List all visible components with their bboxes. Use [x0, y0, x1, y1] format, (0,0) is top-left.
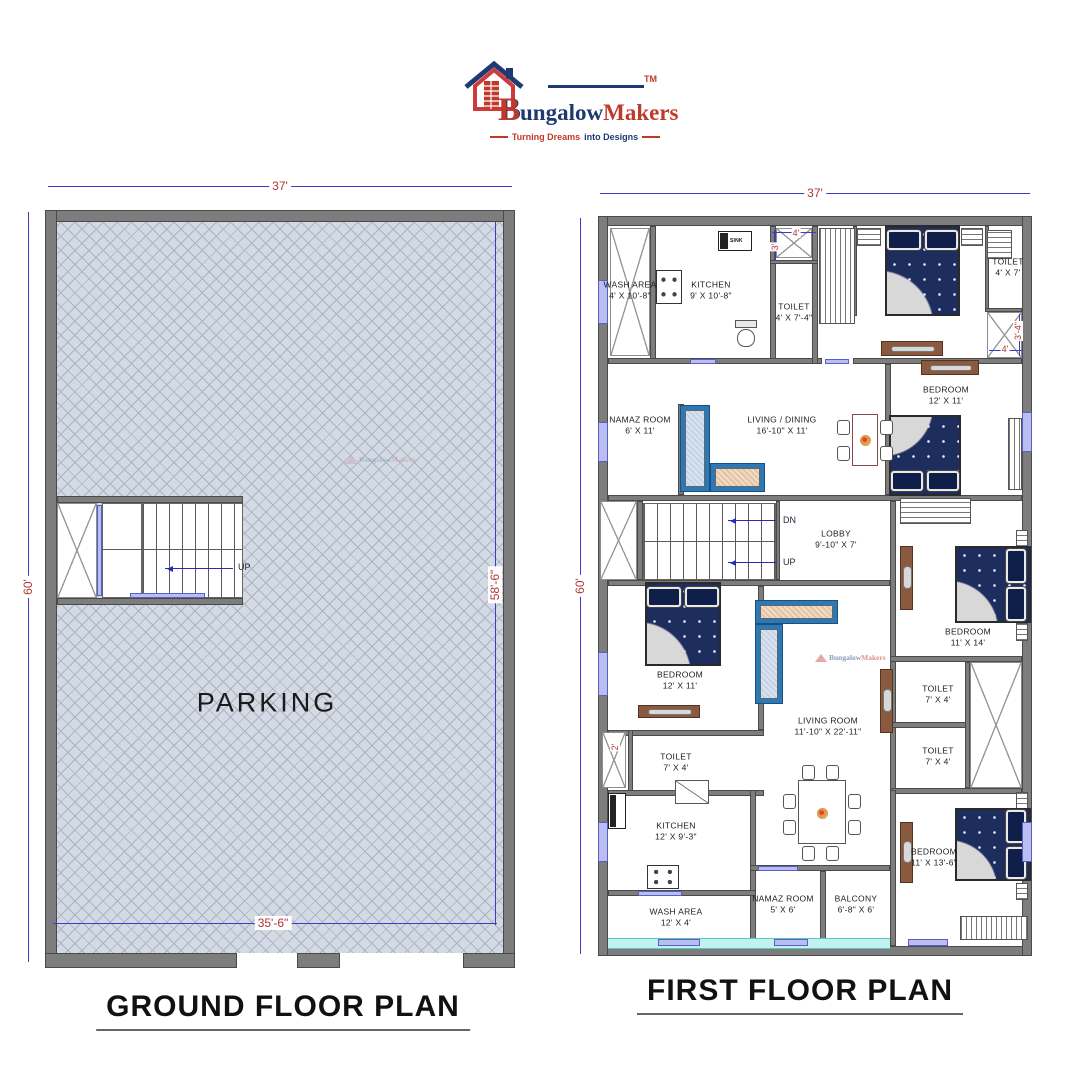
ff-shaft-right-width: 4'	[1001, 344, 1010, 354]
bed-bottom-right	[955, 808, 1031, 881]
gf-stair-wall-bottom	[57, 598, 243, 605]
sink-icon: SINK	[718, 231, 752, 251]
bed-right-middle	[889, 415, 961, 496]
brand-bungalow: ungalow	[520, 100, 603, 125]
ff-shaft-toilet-left	[602, 732, 626, 788]
sofa-living-room-arm	[755, 624, 783, 704]
bed-top-right	[885, 225, 960, 316]
chair	[802, 846, 815, 861]
gf-staircase	[142, 503, 243, 598]
bed-right-14	[955, 546, 1031, 623]
sofa-cushion	[760, 629, 778, 699]
ff-wall	[890, 501, 896, 790]
wardrobe	[1008, 418, 1022, 490]
sofa-cushion	[685, 410, 705, 487]
wardrobe	[960, 916, 1028, 940]
gf-wall-bottom-left	[45, 953, 237, 968]
window	[774, 939, 808, 946]
gf-wall-bottom-right	[463, 953, 515, 968]
brand-tagline: Turning Dreams into Designs	[490, 132, 660, 142]
tagline-rule-left	[490, 136, 508, 138]
bed-pillows	[1006, 548, 1026, 621]
window	[1022, 822, 1032, 862]
nightstand	[857, 228, 881, 246]
chair	[826, 765, 839, 780]
sofa-living-dining-arm	[680, 405, 710, 492]
brand-logo: TM BungalowMakers Turning Dreams into De…	[452, 52, 672, 147]
gf-wall-bottom-mid	[297, 953, 340, 968]
chair	[848, 820, 861, 835]
ff-shaft-top-width: 4'	[792, 228, 801, 238]
tagline-rule-right	[642, 136, 660, 138]
dresser	[921, 360, 979, 375]
wardrobe	[819, 228, 855, 324]
gf-stair-door	[130, 593, 205, 598]
ff-wall	[812, 226, 818, 364]
sofa-living-room-top	[755, 600, 838, 624]
sink-counter-dark	[720, 233, 728, 249]
ff-wall-top	[598, 216, 1032, 226]
wc-bowl	[737, 329, 754, 347]
window	[908, 939, 948, 946]
brand-makers: Makers	[603, 100, 678, 125]
window	[658, 939, 700, 946]
gf-stair-landing	[102, 503, 142, 598]
ff-up-arrow	[728, 562, 776, 563]
gf-wall-right	[503, 210, 515, 968]
window	[598, 822, 608, 862]
ff-wall	[776, 501, 780, 580]
room-label-bedroom-right-14: BEDROOM11' X 14'	[945, 627, 991, 650]
room-label-toilet-top: TOILET4' X 7'-4"	[776, 302, 813, 325]
gf-stair-divider	[102, 549, 243, 550]
gf-wall-top	[45, 210, 515, 222]
room-label-toilet-right-lower: TOILET7' X 4'	[922, 746, 953, 769]
toilet-wc-icon	[735, 320, 757, 347]
chair	[880, 420, 893, 435]
dresser	[900, 546, 913, 610]
ff-watermark: BungalowMakers	[815, 653, 886, 662]
ff-stair-divider	[643, 541, 776, 542]
chair	[848, 794, 861, 809]
bed-pillows	[891, 471, 959, 491]
door-strip	[638, 891, 682, 896]
gf-up-arrow	[165, 568, 233, 569]
chair	[783, 794, 796, 809]
chair	[837, 446, 850, 461]
nightstand	[1016, 623, 1028, 641]
ff-dim-top: 37'	[804, 186, 826, 200]
wardrobe	[987, 230, 1012, 259]
dresser	[880, 669, 893, 733]
gf-lift-shaft	[57, 503, 97, 598]
gf-up-label: UP	[238, 562, 251, 572]
room-label-toilet-left: TOILET7' X 4'	[660, 752, 691, 775]
chair	[802, 765, 815, 780]
sink-icon-lower	[608, 793, 626, 829]
sofa-cushion	[715, 468, 760, 487]
ff-dn-arrow	[728, 520, 776, 521]
ff-wall	[890, 788, 1022, 794]
chair	[880, 446, 893, 461]
food-plate	[860, 435, 871, 446]
balcony-edge	[608, 938, 890, 949]
ff-wall	[770, 260, 818, 264]
brand-letter-b: B	[498, 92, 520, 128]
dresser	[638, 705, 700, 718]
bed-left-middle	[645, 582, 721, 666]
window	[598, 652, 608, 696]
room-label-bedroom-bottom-right: BEDROOM11' X 13'-6"	[911, 847, 957, 870]
brand-name: BungalowMakers	[498, 92, 678, 129]
gf-dim-left: 60'	[21, 576, 35, 598]
nightstand	[1016, 883, 1028, 900]
ff-shaft-right-bottom	[970, 662, 1022, 788]
ff-dn-label: DN	[783, 515, 796, 525]
ff-up-label: UP	[783, 557, 796, 567]
first-floor-title: FIRST FLOOR PLAN	[637, 974, 963, 1015]
tagline-red-text: Turning Dreams	[512, 132, 580, 142]
sink-label: SINK	[730, 238, 743, 244]
kitchen-counter-appliance	[675, 780, 709, 804]
door-strip	[690, 359, 716, 364]
stove-icon-lower	[647, 865, 679, 889]
room-label-kitchen-top: KITCHEN9' X 10'-8"	[690, 280, 732, 303]
room-label-bedroom-left-mid: BEDROOM12' X 11'	[657, 670, 703, 693]
ff-toilet-entry-dim: 2'	[610, 743, 620, 752]
tagline-blue-text: into Designs	[584, 132, 638, 142]
sink-counter-dark	[610, 795, 616, 827]
room-label-lobby: LOBBY9'-10" X 7'	[815, 529, 857, 552]
room-label-living-dining: LIVING / DINING16'-10" X 11'	[747, 415, 816, 438]
room-label-namaz-room-lower: NAMAZ ROOM5' X 6'	[752, 894, 814, 917]
gf-dim-bottom-inner: 35'-6"	[255, 916, 292, 930]
sofa-living-dining-base	[710, 463, 765, 492]
ff-watermark-house-icon	[815, 654, 827, 662]
floor-plan-sheet: TM BungalowMakers Turning Dreams into De…	[0, 0, 1080, 1080]
chair	[837, 420, 850, 435]
gf-watermark-house-icon	[345, 456, 357, 464]
ff-shaft-right-height: 3'-4"	[1013, 321, 1023, 341]
gf-watermark: BungalowMakers	[345, 455, 416, 464]
window	[1022, 412, 1032, 452]
room-label-namaz-room-upper: NAMAZ ROOM6' X 11'	[609, 415, 671, 438]
ff-shaft-top-height: 3'	[770, 243, 780, 252]
ff-wall	[628, 730, 633, 796]
chair	[783, 820, 796, 835]
stove-icon	[656, 270, 682, 304]
ground-floor-plan: UP PARKING BungalowMakers 58'-6" 35'-6"	[45, 210, 515, 968]
room-label-balcony: BALCONY6'-8" X 6'	[835, 894, 878, 917]
door-strip	[825, 359, 849, 364]
room-label-wash-area-lower: WASH AREA12' X 4'	[650, 907, 703, 930]
wc-tank	[735, 320, 757, 328]
chair	[826, 846, 839, 861]
room-label-wash-area-top: WASH AREA4' X 10'-8"	[604, 280, 657, 303]
ff-wall	[608, 890, 756, 896]
nightstand	[1016, 530, 1028, 547]
room-label-living-room: LIVING ROOM11'-10" X 22'-11"	[795, 716, 862, 739]
bed-pillows	[887, 230, 958, 250]
ff-wall	[890, 790, 896, 946]
trademark-symbol: TM	[644, 74, 657, 84]
wardrobe	[900, 498, 971, 524]
ff-wall	[820, 871, 826, 946]
sofa-cushion	[760, 605, 833, 619]
ground-floor-title: GROUND FLOOR PLAN	[96, 990, 470, 1031]
first-floor-plan: DN UP	[598, 216, 1032, 956]
ff-lift-shaft	[600, 501, 637, 580]
gf-wall-left	[45, 210, 57, 968]
nightstand	[961, 228, 983, 246]
food-plate	[817, 808, 828, 819]
roof-line	[548, 85, 644, 88]
room-label-toilet-right-upper: TOILET7' X 4'	[922, 684, 953, 707]
gf-dim-right-inner: 58'-6"	[488, 567, 502, 604]
dresser	[881, 341, 943, 356]
gf-stair-wall-top	[57, 496, 243, 503]
gf-dim-top: 37'	[269, 179, 291, 193]
window	[598, 422, 608, 462]
ff-dim-left: 60'	[573, 575, 587, 597]
bed-pillows	[647, 587, 719, 607]
door-strip	[758, 866, 798, 871]
room-label-bedroom-right-mid: BEDROOM12' X 11'	[923, 385, 969, 408]
parking-label: PARKING	[197, 688, 338, 719]
room-label-kitchen-lower: KITCHEN12' X 9'-3"	[655, 821, 697, 844]
room-label-toilet-top-right: TOILET4' X 7'	[992, 257, 1023, 280]
